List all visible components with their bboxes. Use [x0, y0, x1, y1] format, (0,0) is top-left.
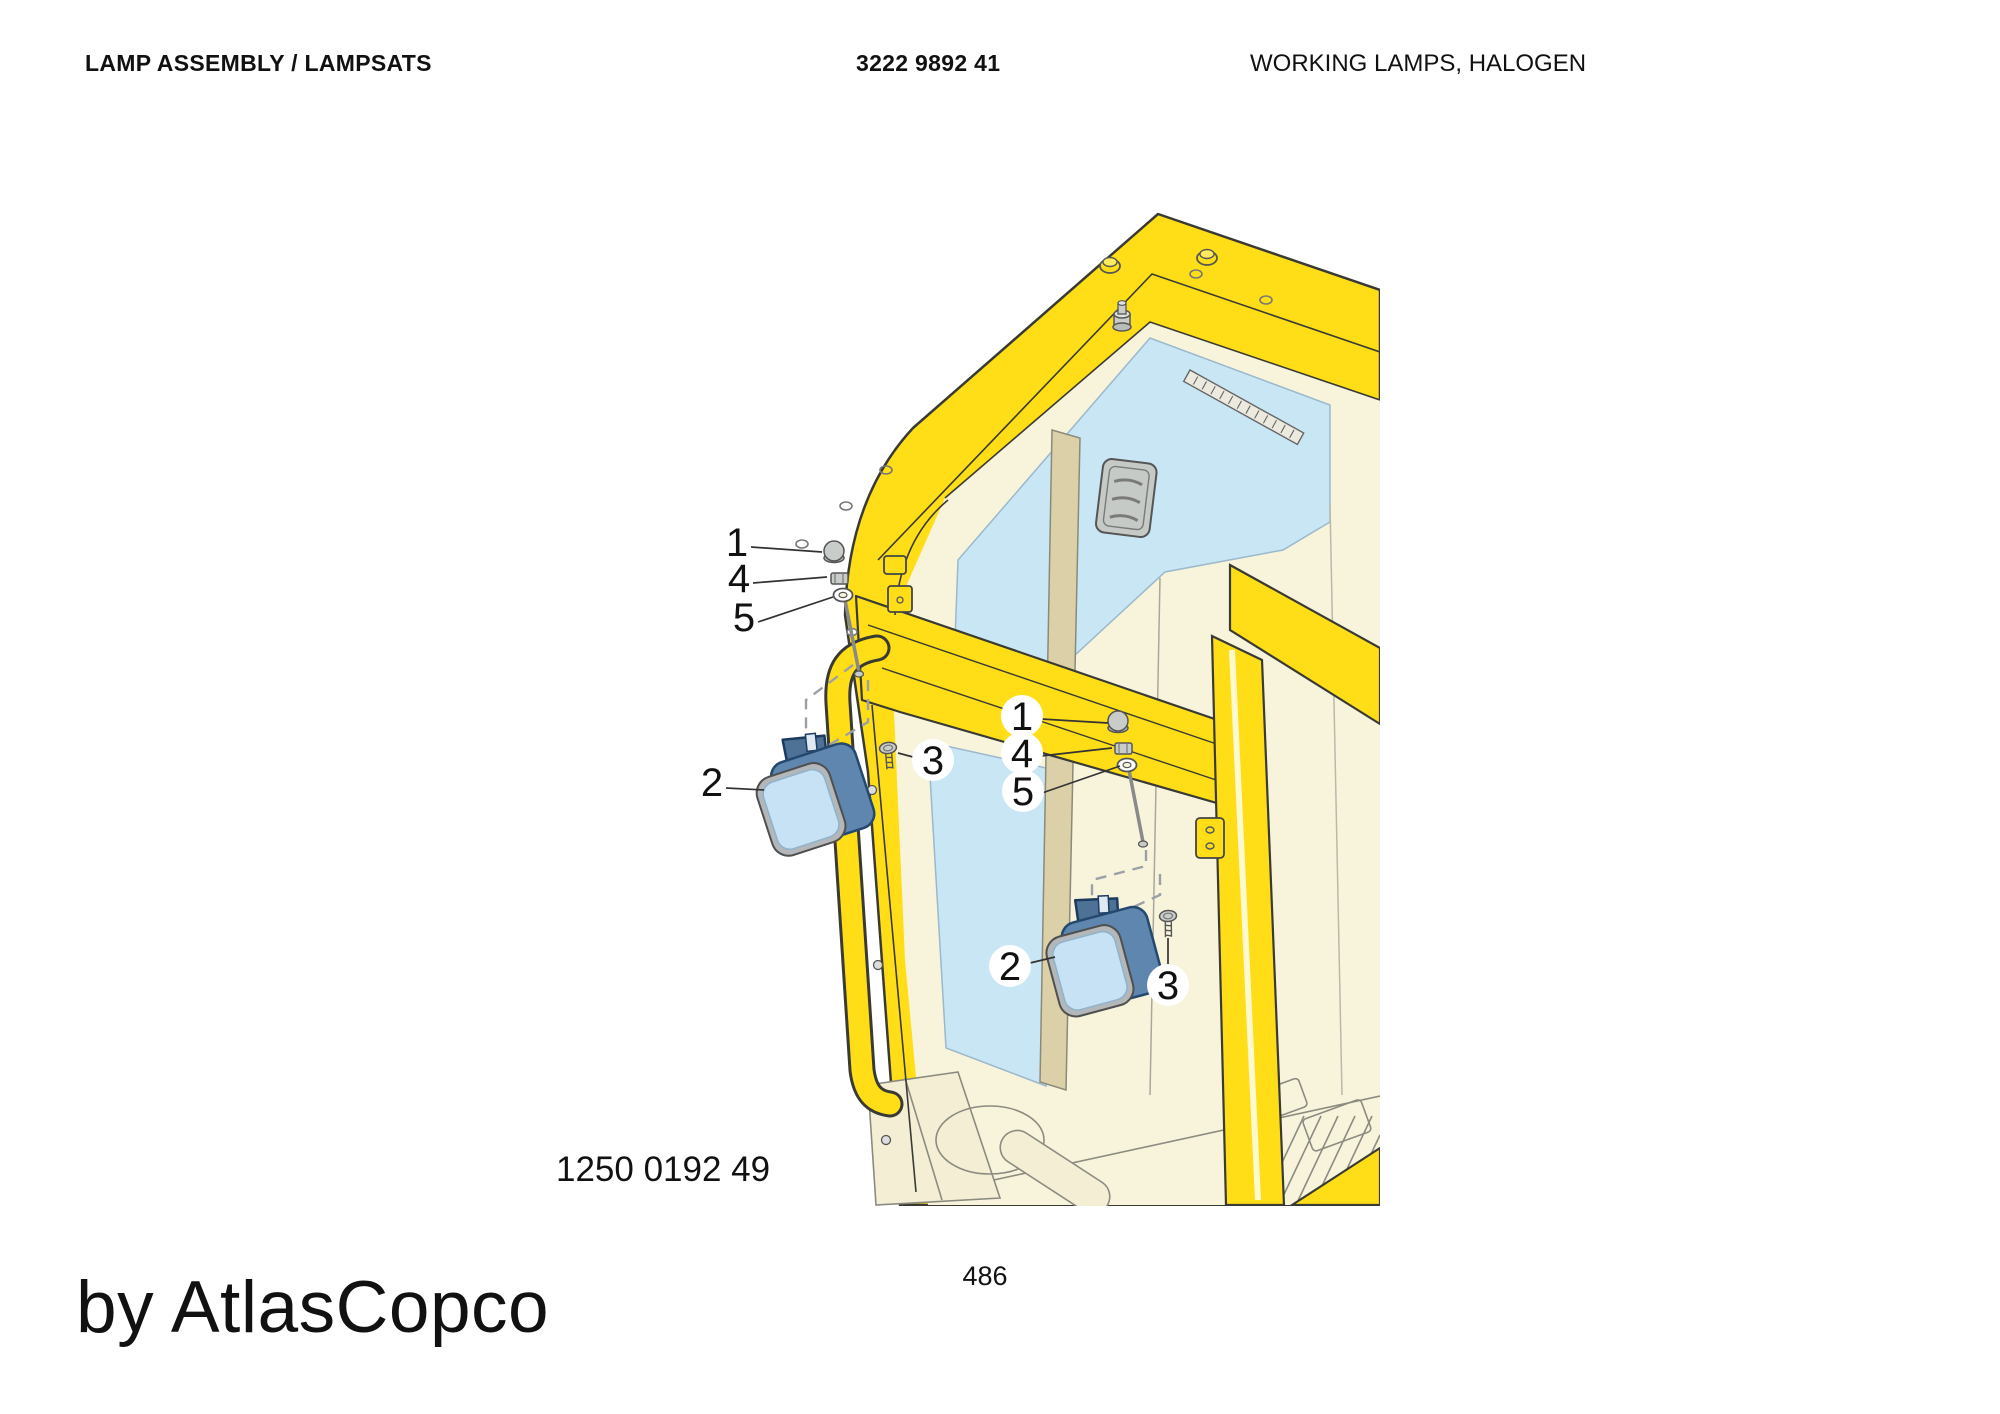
callout-5-upper: 5: [733, 596, 755, 640]
page-number: 486: [940, 1261, 1030, 1292]
callout-5-lower: 5: [1012, 770, 1034, 814]
watermark: by AtlasCopco: [76, 1266, 549, 1349]
latch-plate: [1095, 458, 1158, 538]
callout-4-upper: 4: [728, 557, 750, 601]
parts-diagram: 1 4 5 1 4 5 2 3 2 3: [0, 0, 2000, 1414]
cab-illustration: [796, 214, 1380, 1220]
drawing-number: 1250 0192 49: [556, 1150, 770, 1190]
rail-bracket: [1196, 818, 1224, 858]
callout-2-lower: 2: [999, 945, 1021, 989]
callout-3-upper: 3: [922, 739, 944, 783]
callout-2-upper: 2: [701, 761, 723, 805]
callout-3-lower: 3: [1157, 964, 1179, 1008]
